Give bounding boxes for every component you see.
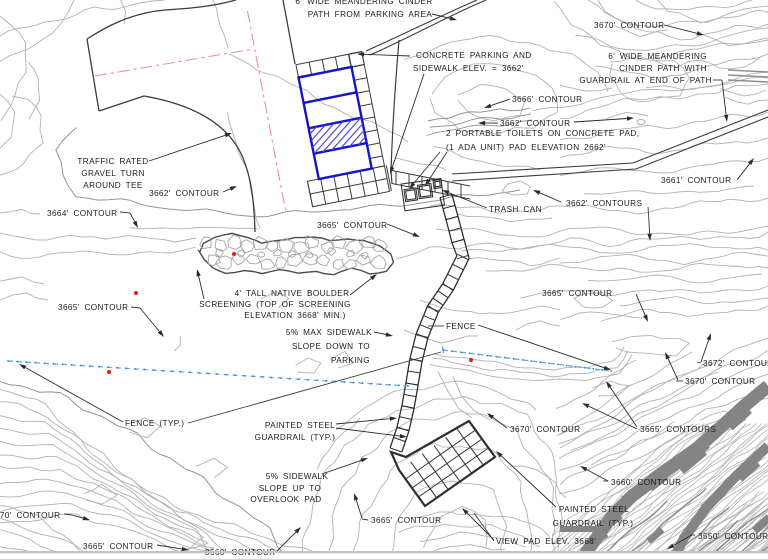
- svg-text:ELEVATION 3668' MIN.): ELEVATION 3668' MIN.): [244, 311, 345, 320]
- svg-text:3662' CONTOUR: 3662' CONTOUR: [500, 119, 571, 128]
- svg-text:GUARDRAIL (TYP.): GUARDRAIL (TYP.): [255, 433, 336, 442]
- svg-text:SLOPE UP TO: SLOPE UP TO: [259, 484, 322, 493]
- svg-text:3661' CONTOUR: 3661' CONTOUR: [661, 176, 732, 185]
- svg-text:SIDEWALK ELEV. = 3662': SIDEWALK ELEV. = 3662': [413, 64, 524, 73]
- svg-text:2 PORTABLE TOILETS ON CONCRETE: 2 PORTABLE TOILETS ON CONCRETE PAD,: [446, 129, 639, 138]
- svg-text:(1 ADA UNIT) PAD ELEVATION 266: (1 ADA UNIT) PAD ELEVATION 2662': [446, 143, 606, 152]
- svg-text:GUARDRAIL (TYP.): GUARDRAIL (TYP.): [553, 519, 634, 528]
- svg-text:TRAFFIC RATED: TRAFFIC RATED: [77, 157, 148, 166]
- svg-text:3666' CONTOUR: 3666' CONTOUR: [512, 95, 583, 104]
- svg-text:3670' CONTOUR: 3670' CONTOUR: [594, 21, 665, 30]
- svg-text:GUARDRAIL AT END OF PATH: GUARDRAIL AT END OF PATH: [579, 76, 712, 85]
- svg-text:5% MAX SIDEWALK: 5% MAX SIDEWALK: [286, 328, 372, 337]
- svg-text:PAINTED STEEL: PAINTED STEEL: [265, 421, 335, 430]
- svg-text:3672' CONTOUR: 3672' CONTOUR: [703, 359, 768, 368]
- svg-text:SCREENING (TOP OF SCREENING: SCREENING (TOP OF SCREENING: [199, 300, 351, 309]
- svg-text:PARKING: PARKING: [331, 356, 370, 365]
- svg-text:PAINTED STEEL: PAINTED STEEL: [559, 505, 629, 514]
- svg-text:TRASH CAN: TRASH CAN: [489, 205, 542, 214]
- svg-text:3662' CONTOUR: 3662' CONTOUR: [149, 189, 220, 198]
- svg-text:FENCE: FENCE: [446, 322, 476, 331]
- svg-text:3665' CONTOUR: 3665' CONTOUR: [371, 516, 442, 525]
- svg-text:3662' CONTOURS: 3662' CONTOURS: [566, 199, 642, 208]
- svg-text:3665' CONTOUR: 3665' CONTOUR: [542, 289, 613, 298]
- svg-text:3670' CONTOUR: 3670' CONTOUR: [685, 377, 756, 386]
- svg-text:3670' CONTOUR: 3670' CONTOUR: [510, 425, 581, 434]
- svg-text:OVERLOOK PAD: OVERLOOK PAD: [250, 495, 321, 504]
- svg-text:3665' CONTOUR: 3665' CONTOUR: [83, 542, 154, 551]
- svg-text:AROUND TEE: AROUND TEE: [83, 181, 143, 190]
- svg-text:4' TALL NATIVE BOULDER: 4' TALL NATIVE BOULDER: [235, 289, 350, 298]
- svg-text:CINDER PATH WITH: CINDER PATH WITH: [619, 64, 707, 73]
- svg-text:6' WIDE MEANDERING CINDER: 6' WIDE MEANDERING CINDER: [295, 0, 432, 6]
- svg-text:CONCRETE PARKING AND: CONCRETE PARKING AND: [416, 51, 532, 60]
- svg-text:3550' CONTOUR: 3550' CONTOUR: [698, 532, 768, 541]
- svg-text:6' WIDE MEANDERING: 6' WIDE MEANDERING: [608, 52, 707, 61]
- svg-text:VIEW PAD ELEV. 3668': VIEW PAD ELEV. 3668': [496, 537, 596, 546]
- svg-text:3660' CONTOUR: 3660' CONTOUR: [611, 478, 682, 487]
- svg-text:3670' CONTOUR: 3670' CONTOUR: [0, 511, 61, 520]
- svg-text:3664' CONTOUR: 3664' CONTOUR: [47, 209, 118, 218]
- svg-text:PATH FROM PARKING AREA: PATH FROM PARKING AREA: [308, 10, 433, 19]
- svg-text:3665' CONTOUR: 3665' CONTOUR: [317, 221, 388, 230]
- svg-text:5% SIDEWALK: 5% SIDEWALK: [266, 472, 329, 481]
- svg-text:3665' CONTOUR: 3665' CONTOUR: [58, 303, 129, 312]
- svg-text:FENCE (TYP.): FENCE (TYP.): [125, 419, 184, 428]
- svg-text:SLOPE DOWN TO: SLOPE DOWN TO: [292, 342, 370, 351]
- svg-text:GRAVEL TURN: GRAVEL TURN: [81, 169, 145, 178]
- svg-text:3665' CONTOURS: 3665' CONTOURS: [640, 425, 716, 434]
